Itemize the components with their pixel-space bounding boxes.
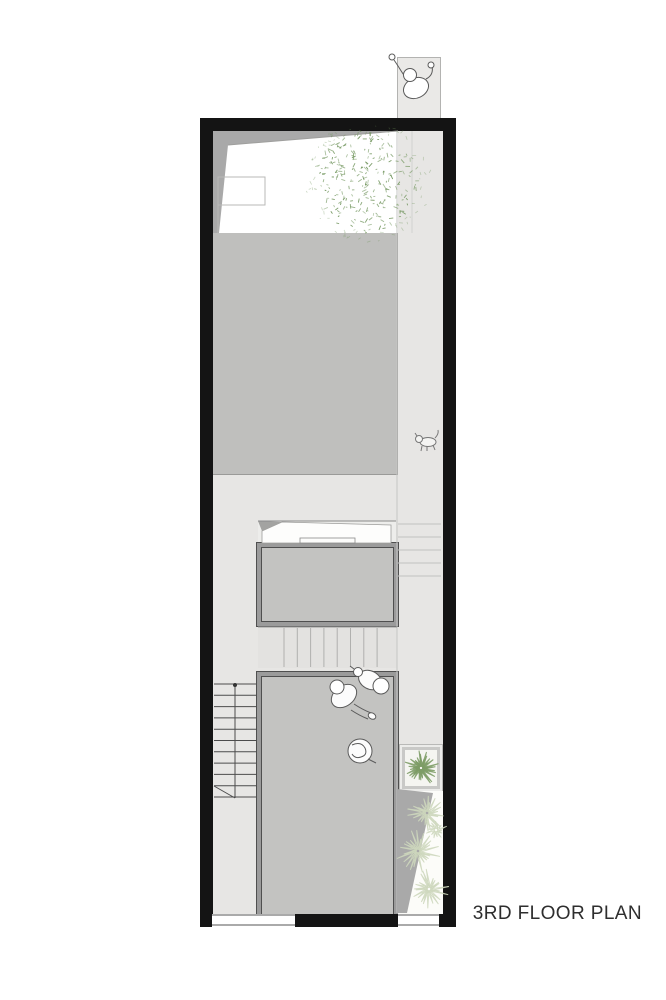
roof-shadow-wedge: [213, 131, 398, 233]
skylight-band: [258, 521, 396, 544]
bottom-window-left: [212, 914, 295, 927]
void-roof-panel: [213, 233, 398, 475]
floor-plan-canvas: 3RD FLOOR PLAN: [0, 0, 666, 1000]
garden-bed: [398, 791, 443, 914]
planter-box: [399, 744, 443, 792]
plan-title: 3RD FLOOR PLAN: [420, 903, 642, 925]
main-stair-flight: [258, 627, 397, 668]
living-room: [256, 671, 399, 921]
framed-void-opening: [256, 542, 399, 627]
